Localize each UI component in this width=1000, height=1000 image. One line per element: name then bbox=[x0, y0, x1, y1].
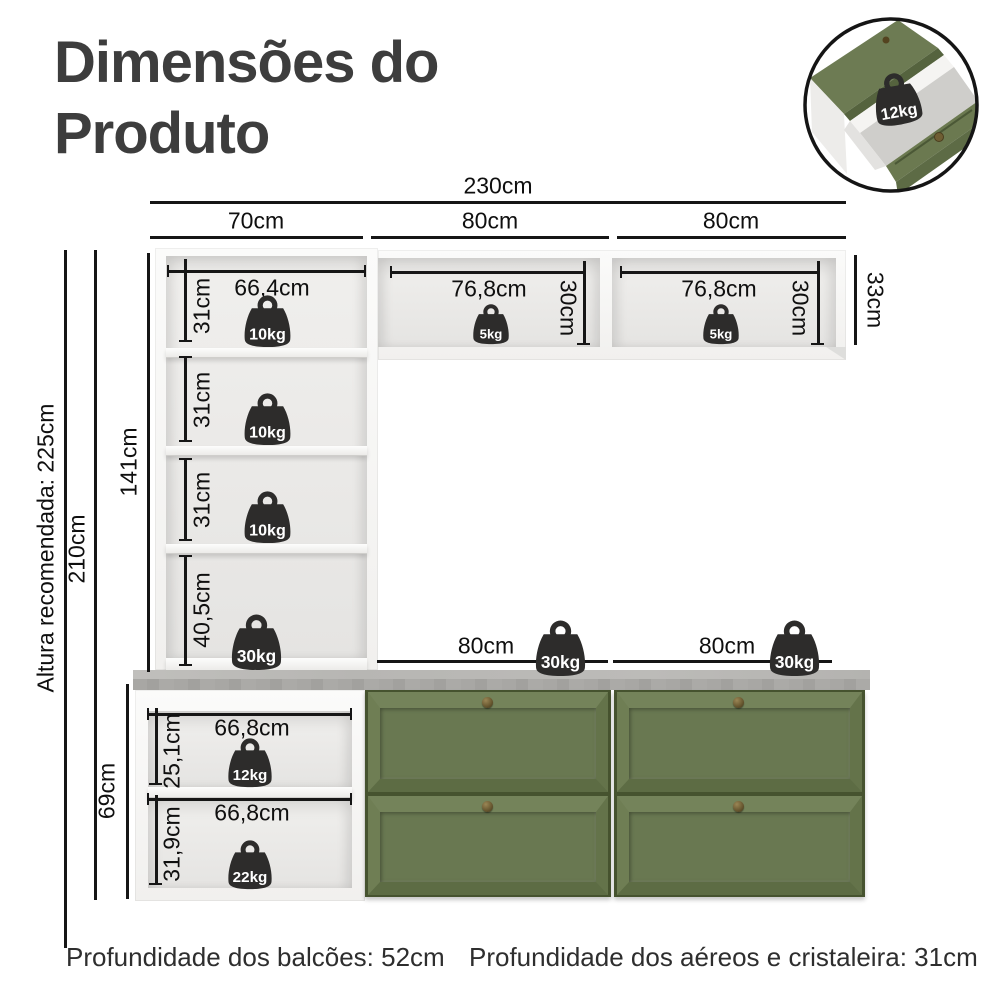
svg-text:22kg: 22kg bbox=[233, 869, 268, 886]
label-aereo1-height: 30cm bbox=[555, 280, 582, 336]
green-drawer-unit-1 bbox=[365, 690, 611, 897]
tick bbox=[577, 343, 590, 345]
hutch-shelf bbox=[166, 446, 367, 456]
label-aereo2-height: 30cm bbox=[787, 280, 814, 336]
label-total-width: 230cm bbox=[463, 173, 532, 200]
tick bbox=[179, 440, 192, 442]
dim-line-base2-height bbox=[155, 795, 158, 885]
tick bbox=[179, 555, 192, 557]
drawer-knob bbox=[482, 801, 493, 812]
weight-icon: 5kg bbox=[699, 303, 743, 345]
tick bbox=[179, 356, 192, 358]
svg-text:10kg: 10kg bbox=[249, 325, 286, 343]
weight-icon: 10kg bbox=[239, 392, 296, 446]
label-hutch-c3-height: 31cm bbox=[189, 472, 216, 528]
label-total-height: 210cm bbox=[64, 514, 91, 583]
drawer-knob bbox=[733, 801, 744, 812]
dim-line-aereo-outer-height bbox=[854, 255, 857, 345]
tick bbox=[179, 539, 192, 541]
dim-line-base-height bbox=[126, 684, 129, 899]
weight-icon: 5kg bbox=[469, 303, 513, 345]
dim-line-hutch-c2 bbox=[184, 357, 187, 442]
label-counter1-width: 80cm bbox=[458, 633, 514, 660]
label-seg-70: 70cm bbox=[228, 208, 284, 235]
product-dimensions-diagram: 230cm 70cm 80cm 80cm Altura recomendada:… bbox=[0, 0, 1000, 1000]
tick bbox=[147, 793, 149, 805]
svg-text:30kg: 30kg bbox=[237, 646, 276, 666]
hutch-shelf bbox=[166, 544, 367, 554]
tick bbox=[390, 266, 392, 278]
label-counter2-width: 80cm bbox=[699, 633, 755, 660]
dim-line-aereo2-width bbox=[620, 271, 818, 274]
label-base1-height: 25,1cm bbox=[159, 713, 186, 788]
dim-line-hutch-width bbox=[167, 270, 366, 273]
tick bbox=[350, 793, 352, 805]
drawer-knob bbox=[482, 697, 493, 708]
dim-line-total-width bbox=[150, 201, 846, 204]
hutch-shelf bbox=[166, 348, 367, 358]
dim-line-base1-height bbox=[155, 708, 158, 785]
dim-line-recommended-height bbox=[64, 250, 67, 948]
tick bbox=[147, 708, 149, 720]
tick bbox=[350, 708, 352, 720]
weight-icon: 30kg bbox=[764, 619, 825, 677]
tick bbox=[811, 343, 824, 345]
label-hutch-c2-height: 31cm bbox=[189, 372, 216, 428]
weight-icon: 10kg bbox=[239, 490, 296, 544]
tick bbox=[620, 266, 622, 278]
label-aereo2-width: 76,8cm bbox=[681, 276, 756, 303]
svg-text:10kg: 10kg bbox=[249, 521, 286, 539]
svg-text:30kg: 30kg bbox=[775, 652, 814, 672]
dim-line-aereo1-height bbox=[583, 261, 586, 345]
svg-text:5kg: 5kg bbox=[710, 326, 733, 341]
countertop-front bbox=[133, 679, 870, 690]
page-title: Dimensões do Produto bbox=[54, 28, 574, 170]
tick bbox=[149, 883, 162, 885]
dim-line-hutch-c1 bbox=[184, 259, 187, 342]
weight-icon: 10kg bbox=[239, 294, 296, 348]
dim-line-seg-80a bbox=[371, 236, 609, 239]
weight-icon: 22kg bbox=[223, 839, 277, 890]
drawer-capacity-inset: 12kg bbox=[800, 14, 982, 196]
label-seg-80a: 80cm bbox=[462, 208, 518, 235]
weight-icon: 30kg bbox=[226, 613, 287, 671]
dim-line-hutch-c3 bbox=[184, 459, 187, 541]
footnote-aereos: Profundidade dos aéreos e cristaleira: 3… bbox=[469, 942, 978, 973]
tick bbox=[167, 265, 169, 277]
weight-icon: 30kg bbox=[530, 619, 591, 677]
svg-text:30kg: 30kg bbox=[541, 652, 580, 672]
label-base2-height: 31,9cm bbox=[159, 806, 186, 881]
svg-text:10kg: 10kg bbox=[249, 423, 286, 441]
dim-line-hutch-c4 bbox=[184, 556, 187, 666]
tick bbox=[179, 340, 192, 342]
label-hutch-height: 141cm bbox=[116, 427, 143, 496]
dim-line-seg-70 bbox=[150, 236, 363, 239]
label-aereo-outer-height: 33cm bbox=[862, 272, 889, 328]
label-aereo1-width: 76,8cm bbox=[451, 276, 526, 303]
label-hutch-c1-height: 31cm bbox=[189, 278, 216, 334]
dim-line-aereo2-height bbox=[817, 261, 820, 345]
countertop-surface bbox=[133, 670, 870, 679]
drawer-knob bbox=[733, 697, 744, 708]
dim-line-aereo1-width bbox=[390, 271, 584, 274]
label-base-height: 69cm bbox=[94, 763, 121, 819]
svg-text:5kg: 5kg bbox=[480, 326, 503, 341]
dim-line-seg-80b bbox=[617, 236, 846, 239]
tick bbox=[179, 458, 192, 460]
svg-text:12kg: 12kg bbox=[233, 767, 268, 784]
label-hutch-c4-height: 40,5cm bbox=[189, 572, 216, 647]
tick bbox=[364, 265, 366, 277]
weight-icon: 12kg bbox=[223, 737, 277, 788]
label-base2-width: 66,8cm bbox=[214, 800, 289, 827]
dim-line-hutch-height bbox=[147, 253, 150, 672]
label-seg-80b: 80cm bbox=[703, 208, 759, 235]
green-drawer-unit-2 bbox=[614, 690, 865, 897]
tick bbox=[179, 664, 192, 666]
label-recommended-height: Altura recomendada: 225cm bbox=[33, 404, 60, 693]
footnote-balcoes: Profundidade dos balcões: 52cm bbox=[66, 942, 445, 973]
